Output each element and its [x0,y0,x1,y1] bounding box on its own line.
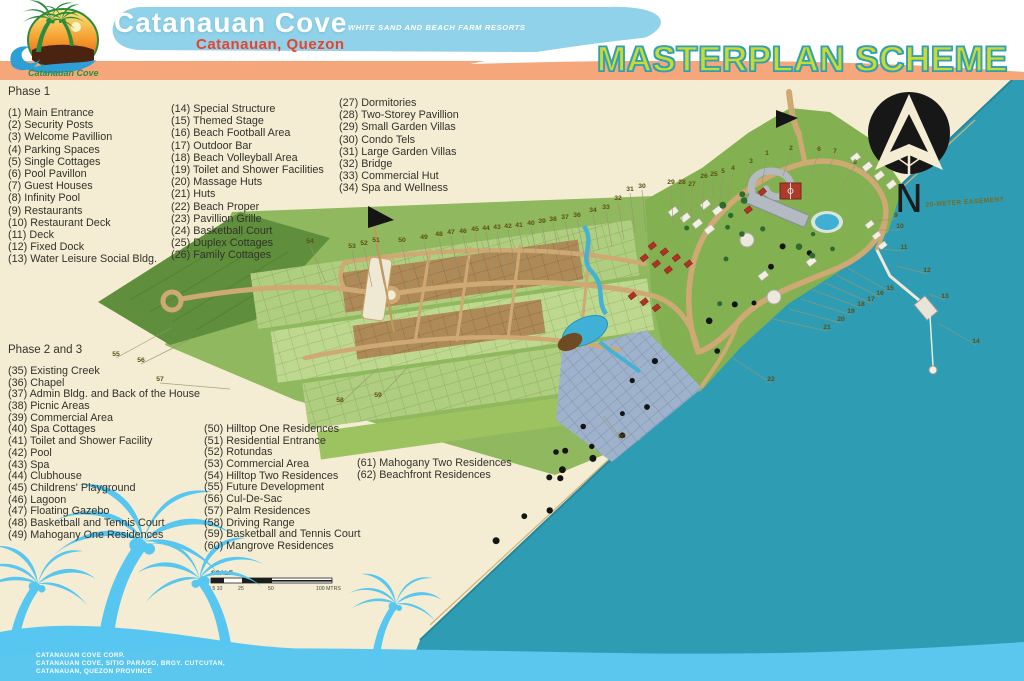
map-marker: 37 [561,214,569,221]
map-marker: 32 [614,195,622,202]
legend-item: (45) Childrens' Playground [8,483,200,495]
map-marker: 21 [823,324,831,331]
legend-item: (28) Two-Storey Pavillion [339,109,459,121]
legend-item: (53) Commercial Area [204,459,360,471]
legend-item: (4) Parking Spaces [8,144,157,156]
map-marker: 22 [767,376,775,383]
legend-item: (8) Infinity Pool [8,192,157,204]
buoy [929,366,937,374]
palm-tree-dot [732,301,738,307]
map-marker: 20 [837,316,845,323]
map-marker: 12 [923,267,931,274]
resort-name: Catanauan Cove [114,7,347,39]
map-marker: 8 [853,159,857,166]
legend-item: (32) Bridge [339,158,459,170]
map-marker: 2 [789,145,793,152]
legend-phase2-col1: (35) Existing Creek(36) Chapel(37) Admin… [8,366,200,541]
map-marker: 47 [447,229,455,236]
tree-dot [724,257,729,262]
legend-item: (19) Toilet and Shower Facilities [171,164,324,176]
map-marker: 36 [573,212,581,219]
legend-item: (50) Hilltop One Residences [204,424,360,436]
map-marker: 59 [374,392,382,399]
pool [815,214,839,230]
palm-tree-dot [768,264,774,270]
map-marker: 39 [538,218,546,225]
map-marker: 27 [688,181,696,188]
palm-tree-dot [493,537,500,544]
legend-item: (21) Huts [171,188,324,200]
tree-dot [717,301,722,306]
map-marker: 58 [336,397,344,404]
palm-tree-dot [580,424,586,430]
palm-tree-dot [521,513,527,519]
legend-item: (26) Family Cottages [171,249,324,261]
legend-item: (17) Outdoor Bar [171,140,324,152]
legend-item: (9) Restaurants [8,205,157,217]
corporate-address: CATANAUAN COVE CORP. CATANAUAN COVE, SIT… [36,652,225,676]
map-marker: 14 [972,338,980,345]
corp-line: CATANAUAN COVE, SITIO PARAGO, BRGY. CUTC… [36,660,225,668]
map-marker: 49 [420,234,428,241]
map-marker: 19 [847,308,855,315]
legend-item: (23) Pavillion Grille [171,213,324,225]
legend-item: (14) Special Structure [171,103,324,115]
legend-phase1-col1: (1) Main Entrance(2) Security Posts(3) W… [8,107,157,265]
map-marker: 18 [857,301,865,308]
legend-item: (5) Single Cottages [8,156,157,168]
tree-dot [810,253,816,259]
tree-dot [719,202,726,209]
palm-tree-dot [620,411,625,416]
masterplan-map: N 20-METER EASEMENT SCALE 0 5 10 25 50 1… [0,0,1024,681]
legend-item: (7) Guest Houses [8,180,157,192]
map-marker: 33 [602,204,610,211]
map-marker: 31 [626,186,634,193]
tree-dot [796,243,803,250]
map-marker: 38 [549,216,557,223]
map-marker: 41 [515,222,523,229]
legend-item: (27) Dormitories [339,97,459,109]
scale-tick: 50 [268,586,274,592]
legend-item: (29) Small Garden Villas [339,121,459,133]
legend-item: (12) Fixed Dock [8,241,157,253]
map-marker: 5 [721,168,725,175]
map-marker: 43 [493,224,501,231]
map-marker: 34 [589,207,597,214]
map-marker: 56 [137,357,145,364]
palm-tree-dot [752,301,757,306]
phase1-title: Phase 1 [8,86,50,98]
map-marker: 52 [360,240,368,247]
masterplan-poster: N 20-METER EASEMENT SCALE 0 5 10 25 50 1… [0,0,1024,681]
palm-tree-dot [644,404,650,410]
palm-tree-dot [546,474,552,480]
legend-item: (20) Massage Huts [171,176,324,188]
legend-item: (48) Basketball and Tennis Court [8,518,200,530]
scale-tick: 25 [238,586,244,592]
legend-item: (22) Beach Proper [171,201,324,213]
scale-tick: 100 MTRS [316,586,341,592]
resort-location: Catanauan, Quezon [196,36,345,53]
phase2-title: Phase 2 and 3 [8,344,82,356]
palm-tree-dot [780,243,786,249]
legend-phase2-col3: (61) Mahogany Two Residences(62) Beachfr… [357,458,512,481]
map-marker: 29 [667,179,675,186]
legend-phase1-col2: (14) Special Structure(15) Themed Stage(… [171,103,324,261]
legend-item: (62) Beachfront Residences [357,470,512,482]
basketball-court [780,183,801,199]
legend-item: (10) Restaurant Deck [8,217,157,229]
legend-item: (2) Security Posts [8,119,157,131]
legend-item: (31) Large Garden Villas [339,146,459,158]
map-marker: 28 [678,179,686,186]
corp-line: CATANAUAN, QUEZON PROVINCE [36,668,225,676]
north-arrow-icon [868,92,950,174]
map-marker: 1 [765,150,769,157]
map-marker: 30 [638,183,646,190]
tree-dot [739,191,745,197]
map-marker: 42 [504,223,512,230]
tree-dot [741,197,748,204]
logo-script-text: Catanauan Cove [28,68,99,78]
rotunda [767,290,781,304]
palm-tree-dot [547,507,553,513]
tree-dot [739,231,745,237]
north-label: N [895,177,923,221]
map-marker: 13 [941,293,949,300]
legend-item: (25) Duplex Cottages [171,237,324,249]
legend-item: (42) Pool [8,448,200,460]
tree-dot [830,247,835,252]
legend-item: (57) Palm Residences [204,506,360,518]
palm-tree-dot [553,449,559,455]
map-marker: 50 [398,237,406,244]
palm-tree-dot [630,378,635,383]
plan-title: MASTERPLAN SCHEME [597,40,1008,80]
map-marker: 15 [886,285,894,292]
palm-tree-dot [706,318,713,325]
resort-tagline: WHITE SAND AND BEACH FARM RESORTS [348,23,526,32]
palm-tree-dot [559,466,566,473]
legend-item: (3) Welcome Pavillion [8,131,157,143]
map-marker: 16 [876,290,884,297]
tree-dot [684,226,689,231]
map-marker: 48 [435,231,443,238]
map-marker: 60 [618,433,626,440]
legend-item: (34) Spa and Wellness [339,182,459,194]
map-marker: 9 [894,212,898,219]
map-marker: 6 [817,146,821,153]
legend-item: (35) Existing Creek [8,366,200,378]
tree-dot [725,225,730,230]
legend-item: (33) Commercial Hut [339,170,459,182]
map-marker: 10 [896,223,904,230]
map-marker: 51 [372,237,380,244]
map-marker: 25 [710,171,718,178]
palm-tree-dot [562,448,568,454]
map-marker: 7 [833,148,837,155]
legend-item: (15) Themed Stage [171,115,324,127]
tree-dot [728,213,733,218]
legend-phase2-col2: (50) Hilltop One Residences(51) Resident… [204,424,360,553]
legend-item: (11) Deck [8,229,157,241]
legend-item: (16) Beach Football Area [171,127,324,139]
map-marker: 53 [348,243,356,250]
legend-item: (13) Water Leisure Social Bldg. [8,253,157,265]
legend-item: (61) Mahogany Two Residences [357,458,512,470]
legend-item: (6) Pool Pavillon [8,168,157,180]
map-marker: 26 [700,173,708,180]
map-marker: 4 [731,165,735,172]
palm-tree-dot [589,455,596,462]
corp-line: CATANAUAN COVE CORP. [36,652,225,660]
tree-dot [760,226,765,231]
legend-item: (18) Beach Volleyball Area [171,152,324,164]
map-marker: 55 [112,351,120,358]
legend-item: (38) Picnic Areas [8,401,200,413]
legend-item: (49) Mahogany One Residences [8,530,200,542]
palm-tree-dot [652,358,658,364]
map-marker: 17 [867,296,875,303]
legend-item: (30) Condo Tels [339,134,459,146]
map-marker: 3 [749,158,753,165]
tree-dot [811,232,815,236]
map-marker: 44 [482,225,490,232]
legend-item: (60) Mangrove Residences [204,541,360,553]
map-marker: 46 [459,228,467,235]
palm-tree-dot [557,475,563,481]
palm-tree-dot [589,444,594,449]
legend-item: (1) Main Entrance [8,107,157,119]
legend-item: (24) Basketball Court [171,225,324,237]
map-marker: 40 [527,220,535,227]
palm-tree-dot [714,348,720,354]
legend-phase1-col3: (27) Dormitories(28) Two-Storey Pavillio… [339,97,459,195]
map-marker: 45 [471,226,479,233]
map-marker: 11 [900,244,907,251]
